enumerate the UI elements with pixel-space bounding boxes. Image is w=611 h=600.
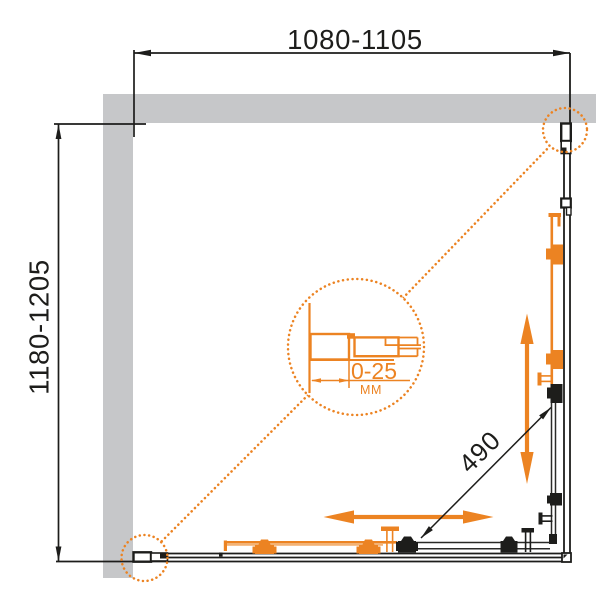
svg-text:MM: MM xyxy=(360,383,382,397)
svg-text:1180-1205: 1180-1205 xyxy=(24,259,55,395)
svg-text:0-25: 0-25 xyxy=(351,358,397,384)
svg-text:1080-1105: 1080-1105 xyxy=(287,24,423,55)
